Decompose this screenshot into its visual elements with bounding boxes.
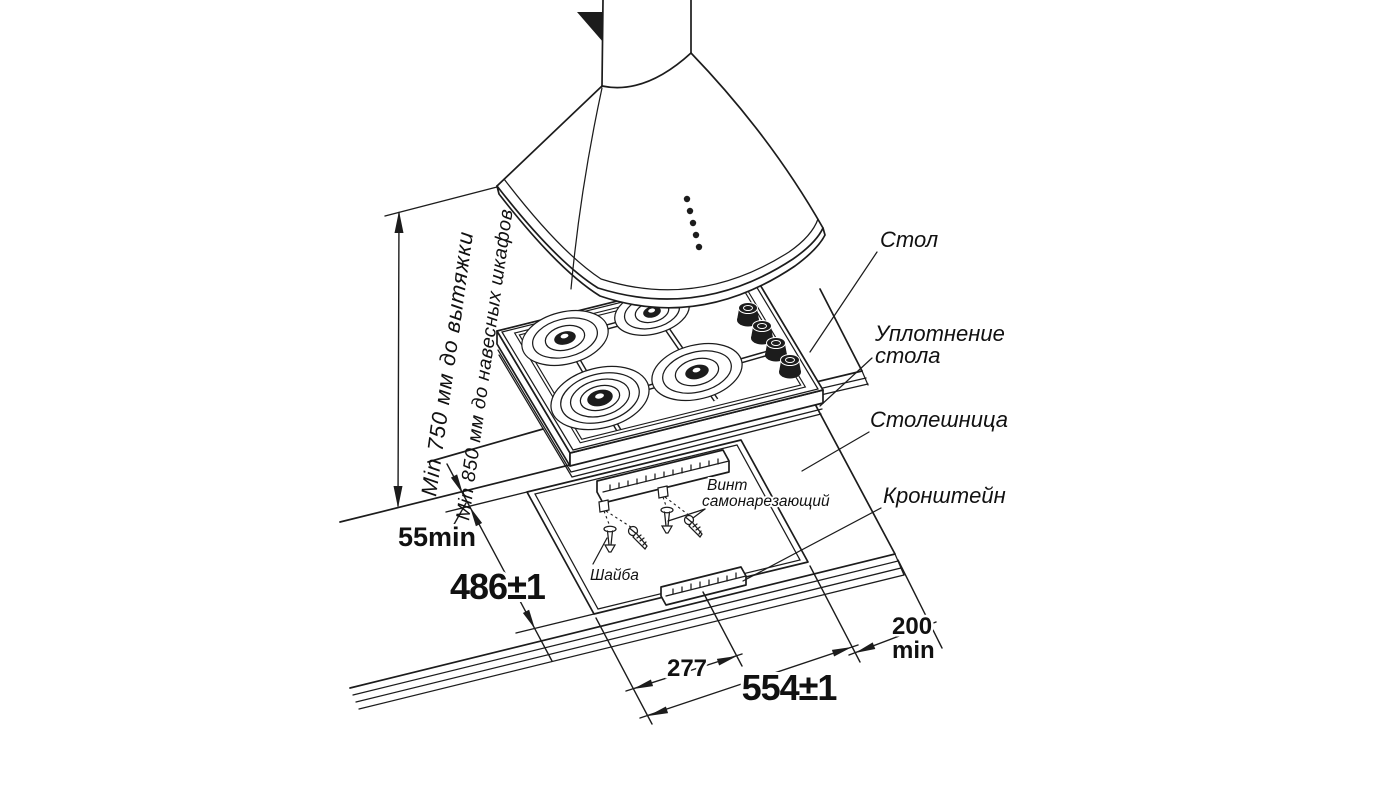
diagram-canvas: Min 750 мм до вытяжки Min 850 мм до наве… [0, 0, 1381, 790]
label-countertop: Столешница [870, 407, 1008, 432]
knob-icon [779, 355, 801, 379]
dim-cutout-depth: 486±1 [450, 566, 546, 607]
label-washer: Шайба [590, 567, 639, 584]
label-bracket: Кронштейн [883, 483, 1006, 508]
dim-rear-gap: 55min [398, 522, 476, 552]
range-hood [497, 0, 825, 308]
dim-cutout-half-width: 277 [667, 655, 707, 682]
installation-diagram: Min 750 мм до вытяжки Min 850 мм до наве… [0, 0, 1381, 790]
label-screw-line2: самонарезающий [702, 493, 830, 510]
dim-side-clearance-unit: min [892, 637, 935, 664]
label-table: Стол [880, 227, 938, 252]
dim-cutout-width: 554±1 [742, 667, 838, 708]
dim-side-clearance-value: 200 [892, 613, 932, 640]
label-table-seal-line2: стола [875, 343, 940, 368]
label-screw-line1: Винт [707, 477, 747, 494]
